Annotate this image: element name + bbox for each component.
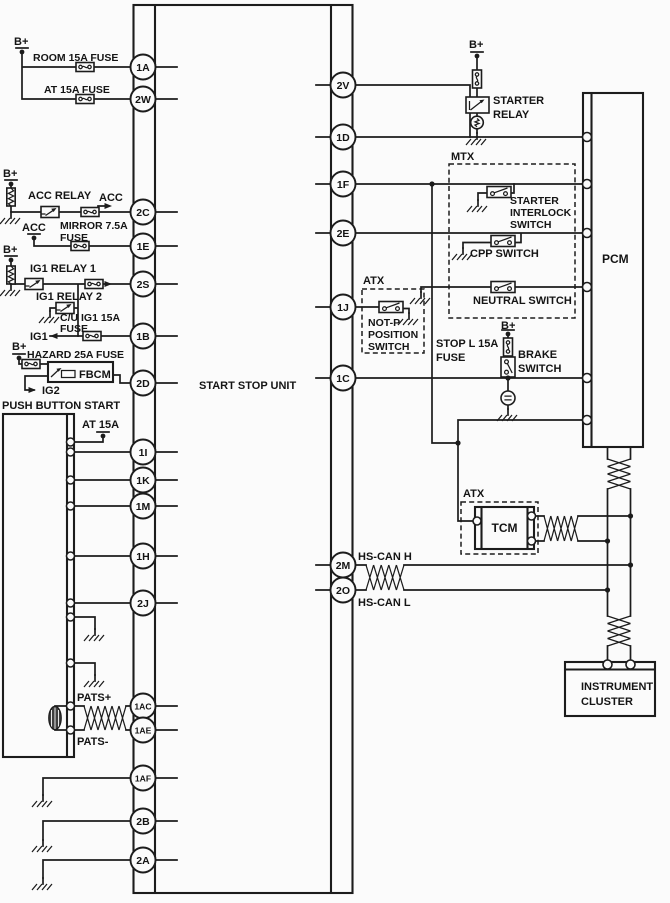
battery-tap-icon (471, 52, 483, 58)
battery-tap-icon (5, 256, 17, 262)
mirror-fuse-label: MIRROR 7.5A (60, 220, 128, 232)
pin-2m: 2M (331, 553, 356, 578)
stop-fuse-label2: FUSE (436, 352, 465, 364)
pin-2d: 2D (131, 371, 156, 396)
fbcm-label: FBCM (79, 369, 111, 381)
pin-1e: 1E (131, 234, 156, 259)
pin-label: 1F (337, 179, 350, 191)
pin-1c: 1C (331, 366, 356, 391)
b-plus-label: B+ (14, 36, 28, 48)
ig1-label: IG1 (30, 331, 48, 343)
ground-icon (84, 675, 104, 687)
pin-label: 1AC (134, 701, 151, 711)
tcm-label: TCM (492, 521, 518, 535)
starter-relay-label2: RELAY (493, 109, 530, 121)
notp-label: NOT-P (368, 317, 400, 329)
ig2-arrow-icon (29, 387, 37, 393)
ig2-label: IG2 (42, 385, 60, 397)
pin-1ae: 1AE (131, 718, 156, 743)
ground-icon (0, 212, 20, 224)
starter-interlock-label: STARTER (510, 195, 559, 207)
battery-tap-icon (16, 48, 28, 54)
hs-can-h-label: HS-CAN H (358, 551, 412, 563)
pin-label: 2A (136, 855, 150, 867)
wiring-diagram: 1A 2W 2C 1E 2S 1B 2D 1I 1K 1M 1H 2J 1AC … (0, 0, 670, 903)
hazard-fuse-label: HAZARD 25A FUSE (27, 349, 124, 361)
neutral-switch-icon (491, 282, 515, 293)
pin-2b: 2B (131, 809, 156, 834)
starter-interlock-label3: SWITCH (510, 219, 551, 231)
pin-label: 2W (135, 94, 151, 106)
pin-label: 2D (136, 378, 150, 390)
hs-can-l-label: HS-CAN L (358, 597, 411, 609)
pats-plus-label: PATS+ (77, 692, 111, 704)
pin-label: 2B (136, 816, 150, 828)
atx-label: ATX (463, 488, 485, 500)
ground-icon (32, 795, 52, 807)
starter-interlock-label2: INTERLOCK (510, 207, 572, 219)
b-plus-label: B+ (3, 244, 17, 256)
stop-lamp-fuse-icon (504, 338, 513, 356)
start-stop-unit-box (134, 5, 353, 893)
ground-icon (32, 878, 52, 890)
ig1-relay1-contact-icon (25, 279, 43, 290)
stop-fuse-label: STOP L 15A (436, 338, 498, 350)
ig1-relay-coil-icon (7, 266, 15, 284)
ground-icon (467, 200, 487, 212)
pin-1f: 1F (331, 172, 356, 197)
pin-label: 1J (337, 302, 349, 314)
pcm-box (583, 93, 644, 447)
right-pin-stubs (316, 85, 331, 590)
notp-label3: SWITCH (368, 341, 409, 353)
cpp-switch-label: CPP SWITCH (470, 248, 539, 260)
pin-label: 1B (136, 331, 150, 343)
notp-position-switch-icon (379, 302, 403, 313)
pin-label: 1AF (135, 773, 151, 783)
pin-label: 1M (136, 501, 151, 513)
pin-2w: 2W (131, 87, 156, 112)
starter-relay-contact-icon (466, 97, 489, 113)
pin-label: 2S (137, 279, 150, 291)
pin-label: 1H (136, 551, 149, 563)
pin-2a: 2A (131, 848, 156, 873)
tcm-twisted-pair (544, 516, 578, 541)
brake-switch-icon (501, 357, 515, 377)
ground-icon (452, 248, 472, 260)
unit-inner-rails (155, 5, 331, 893)
ground-icon (0, 284, 20, 296)
brake-switch-label: BRAKE (518, 349, 557, 361)
pin-1j: 1J (331, 295, 356, 320)
pin-1a: 1A (131, 55, 156, 80)
stop-lamp-icon (501, 391, 515, 405)
pin-label: 2O (336, 585, 350, 597)
diagram-canvas: 1A 2W 2C 1E 2S 1B 2D 1I 1K 1M 1H 2J 1AC … (0, 0, 670, 903)
unit-outline (134, 5, 353, 893)
cu-ig1-fuse-label2: FUSE (60, 323, 88, 335)
b-plus-label: B+ (501, 320, 515, 332)
right-components (379, 52, 517, 421)
pin-label: 2M (336, 560, 351, 572)
b-plus-label: B+ (12, 341, 26, 353)
pin-2c: 2C (131, 200, 156, 225)
pin-label: 1I (139, 447, 148, 459)
mirror-fuse-label2: FUSE (60, 232, 88, 244)
neutral-switch-label: NEUTRAL SWITCH (473, 295, 572, 307)
acc-label: ACC (22, 222, 46, 234)
at15a-tap-icon (97, 432, 109, 438)
starter-fuse-icon (473, 70, 482, 88)
pin-2j: 2J (131, 591, 156, 616)
pin-label: 2V (337, 80, 350, 92)
pin-1ac: 1AC (131, 694, 156, 719)
at-15a-label: AT 15A (82, 419, 119, 431)
atx-label: ATX (363, 275, 385, 287)
pin-1b: 1B (131, 324, 156, 349)
at-fuse-label: AT 15A FUSE (44, 84, 110, 96)
ig1-relay1-label: IG1 RELAY 1 (30, 263, 96, 275)
pin-label: 1E (137, 241, 150, 253)
ground-icon (466, 133, 486, 145)
diagram-labels: B+ ROOM 15A FUSE AT 15A FUSE B+ ACC RELA… (2, 36, 653, 748)
pin-label: 2E (337, 228, 350, 240)
ig1-fuse-icon (85, 280, 103, 289)
pin-label: 1A (136, 62, 150, 74)
acc-relay-label: ACC RELAY (28, 190, 92, 202)
ground-icon (84, 629, 104, 641)
pin-1k: 1K (131, 468, 156, 493)
battery-tap-icon (5, 180, 17, 186)
junction-dots (429, 181, 633, 592)
bus-twist-bottom (608, 616, 631, 646)
room-fuse-label: ROOM 15A FUSE (33, 52, 118, 64)
pin-label: 2J (137, 598, 149, 610)
b-plus-label: B+ (469, 39, 483, 51)
cpp-switch-icon (491, 236, 515, 247)
pin-1m: 1M (131, 494, 156, 519)
pin-label: 1AE (135, 725, 152, 735)
pin-label: 1C (336, 373, 350, 385)
notp-label2: POSITION (368, 329, 418, 341)
acc-fuse-icon (81, 208, 99, 217)
pin-label: 2C (136, 207, 150, 219)
brake-switch-label2: SWITCH (518, 363, 561, 375)
instrument-cluster-label2: CLUSTER (581, 696, 633, 708)
hscan-twisted-pair (366, 565, 404, 590)
starter-interlock-switch-icon (487, 187, 511, 198)
acc-relay-contact-icon (41, 207, 59, 218)
ground-icon (32, 840, 52, 852)
can-bus-rails (608, 447, 631, 660)
pin-2v: 2V (331, 73, 356, 98)
pin-1d: 1D (331, 125, 356, 150)
pin-2o: 2O (331, 578, 356, 603)
mtx-label: MTX (451, 151, 475, 163)
pin-label: 1K (136, 475, 150, 487)
ground-icon (398, 313, 418, 325)
pin-label: 1D (336, 132, 350, 144)
pin-2s: 2S (131, 272, 156, 297)
ground-icon (410, 292, 430, 304)
ig1-relay2-label: IG1 RELAY 2 (36, 291, 102, 303)
pin-2e: 2E (331, 221, 356, 246)
pats-twisted-pair (84, 706, 126, 730)
left-pin-stubs (156, 67, 178, 860)
left-circuit-wires (11, 52, 177, 878)
start-stop-unit-label: START STOP UNIT (199, 380, 296, 392)
acc-label: ACC (99, 192, 123, 204)
starter-relay-label: STARTER (493, 95, 544, 107)
pin-1h: 1H (131, 544, 156, 569)
acc-tap-icon (28, 234, 40, 240)
pin-1i: 1I (131, 440, 156, 465)
ig1-out-arrow-icon (50, 333, 58, 339)
acc-relay-coil-icon (7, 188, 15, 206)
pats-minus-label: PATS- (77, 736, 109, 748)
bus-twist-top (608, 459, 631, 489)
b-plus-label: B+ (3, 168, 17, 180)
push-button-start-label: PUSH BUTTON START (2, 400, 120, 412)
starter-relay-coil-icon (471, 116, 484, 129)
pcm-label: PCM (602, 252, 629, 266)
pin-1af: 1AF (131, 766, 156, 791)
ig1-feed-arrow-icon (105, 281, 113, 287)
fbcm-resistor-icon (62, 371, 76, 378)
instrument-cluster-label: INSTRUMENT (581, 681, 653, 693)
